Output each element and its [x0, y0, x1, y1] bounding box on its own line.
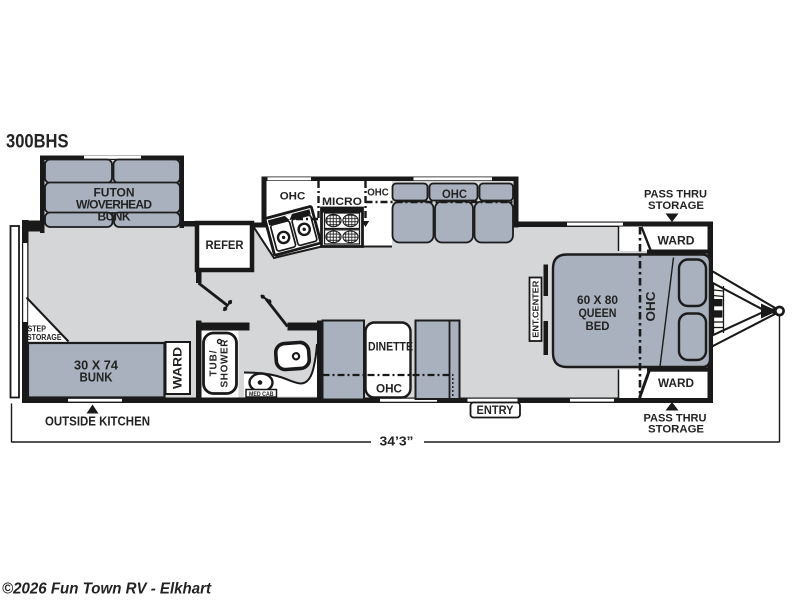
- svg-text:WARD: WARD: [658, 234, 695, 248]
- svg-text:©2026 Fun Town RV - Elkhart: ©2026 Fun Town RV - Elkhart: [2, 581, 212, 598]
- svg-text:STORAGE: STORAGE: [648, 200, 704, 212]
- svg-text:SHOWER: SHOWER: [220, 339, 231, 388]
- svg-text:PASS THRU: PASS THRU: [644, 189, 707, 201]
- svg-text:WARD: WARD: [173, 347, 185, 389]
- svg-text:300BHS: 300BHS: [6, 132, 69, 153]
- svg-text:OUTSIDE KITCHEN: OUTSIDE KITCHEN: [45, 415, 150, 429]
- svg-text:STORAGE: STORAGE: [648, 424, 704, 436]
- svg-text:BUNK: BUNK: [98, 210, 131, 224]
- svg-text:REFER: REFER: [206, 240, 245, 252]
- svg-text:STORAGE: STORAGE: [27, 333, 62, 342]
- svg-text:ENT.CENTER: ENT.CENTER: [532, 281, 541, 338]
- svg-text:OHC: OHC: [367, 188, 389, 199]
- svg-text:BUNK: BUNK: [80, 371, 113, 385]
- svg-text:MICRO: MICRO: [322, 196, 362, 208]
- svg-text:MED CAB: MED CAB: [249, 392, 274, 398]
- svg-text:ENTRY: ENTRY: [477, 403, 514, 417]
- svg-text:BED: BED: [586, 321, 610, 333]
- svg-text:60 X 80: 60 X 80: [577, 295, 618, 307]
- svg-text:WARD: WARD: [658, 376, 694, 390]
- svg-text:OHC: OHC: [376, 384, 402, 396]
- svg-text:OHC: OHC: [643, 291, 658, 322]
- svg-text:OHC: OHC: [280, 191, 306, 203]
- svg-text:DINETTE: DINETTE: [368, 340, 413, 354]
- svg-text:TUB/: TUB/: [209, 350, 220, 376]
- svg-text:34’3”: 34’3”: [380, 434, 414, 449]
- svg-text:QUEEN: QUEEN: [579, 308, 617, 320]
- svg-text:OHC: OHC: [442, 189, 467, 201]
